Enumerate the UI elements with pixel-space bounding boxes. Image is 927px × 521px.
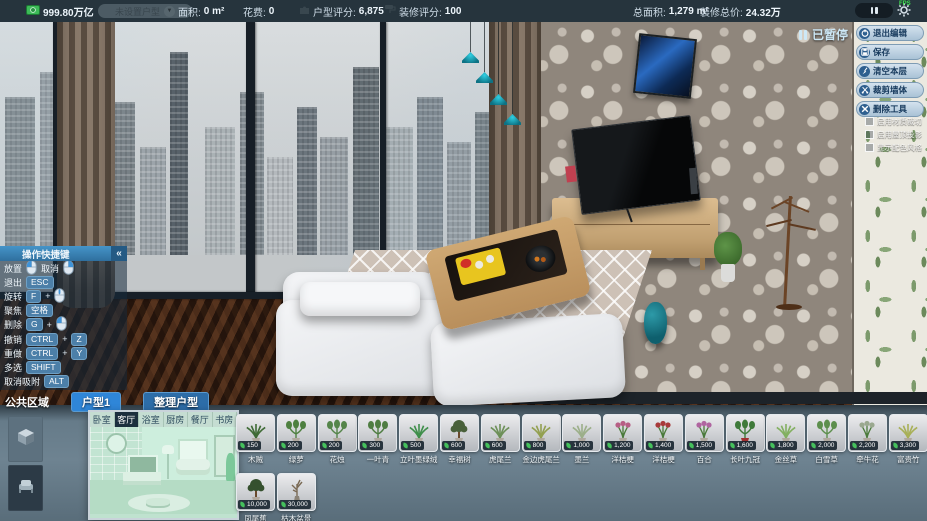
leaf-currency-icon (362, 442, 368, 448)
hotkey-label: 撤销 (4, 333, 22, 346)
catalog-item[interactable]: 800金边虎尾兰 (523, 414, 560, 465)
hotkey-label: 取消吸附 (4, 375, 40, 388)
key-pill: 空格 (26, 304, 53, 317)
item-price: 600 (451, 442, 462, 449)
item-price-badge: 30,000 (279, 500, 311, 509)
item-price: 1,500 (696, 442, 712, 449)
item-price: 3,300 (900, 442, 916, 449)
hotkey-label: 多选 (4, 361, 22, 374)
area-value: 0 m² (204, 6, 225, 17)
item-price-badge: 600 (442, 441, 465, 450)
hotkey-pair: 放置 (4, 260, 37, 277)
hotkey-pair: 撤销CTRL+Z (4, 333, 87, 346)
item-name: 墨兰 (574, 454, 589, 465)
item-name: 幸福树 (448, 454, 471, 465)
deco-score-value: 100 (445, 6, 462, 17)
hotkey-row: 取消吸附ALT (0, 375, 127, 389)
key-pill: F (26, 290, 41, 303)
hotkey-pair: 取消 (41, 260, 74, 277)
item-price: 300 (369, 442, 380, 449)
leaf-currency-icon (851, 442, 857, 448)
action-button-label: 退出编辑 (873, 27, 907, 39)
item-thumbnail: 500 (399, 414, 438, 452)
hotkey-label: 旋转 (4, 290, 22, 303)
hotkey-panel-title: 操作快捷键 (22, 247, 70, 261)
area-label: 面积: (178, 4, 201, 19)
total-area-label: 总面积: (633, 4, 666, 19)
action-button-label: 清空本层 (873, 65, 907, 77)
item-name: 牵牛花 (856, 454, 879, 465)
item-thumbnail: 600 (440, 414, 479, 452)
pendant-lamp-wire (470, 22, 471, 52)
hotkey-row: 多选SHIFT (0, 360, 127, 374)
pendant-lamp-wire (512, 22, 513, 114)
item-price-badge: 3,300 (891, 441, 919, 450)
catalog-item[interactable]: 1,000墨兰 (563, 414, 600, 465)
tv (576, 122, 696, 212)
action-button[interactable]: 删除工具 (856, 101, 924, 117)
leaf-currency-icon (688, 442, 694, 448)
hotkey-pair: 取消吸附ALT (4, 375, 69, 388)
floor-tab[interactable]: 整理户型 (143, 392, 209, 412)
action-button-label: 保存 (873, 46, 890, 58)
money-icon (26, 5, 40, 18)
edit-actions-panel: 退出编辑保存清空本层裁剪墙体删除工具 (856, 25, 924, 117)
window-frame (246, 22, 255, 297)
leaf-currency-icon (280, 442, 286, 448)
room-style-preview-panel: 卧室客厅浴室厨房餐厅书房 (88, 410, 239, 520)
total-price-value: 24.32万 (746, 4, 781, 19)
item-price: 500 (410, 442, 421, 449)
item-name: 富贵竹 (897, 454, 920, 465)
item-thumbnail: 800 (522, 414, 561, 452)
item-thumbnail: 300 (358, 414, 397, 452)
room-tab[interactable]: 浴室 (139, 412, 164, 427)
total-price-label: 装修总价: (700, 4, 743, 19)
item-price: 200 (288, 442, 299, 449)
plus-sign: + (45, 291, 50, 301)
total-price-stat: 装修总价: 24.32万 (700, 0, 781, 22)
plus-sign: + (47, 320, 52, 330)
item-thumbnail: 200 (318, 414, 357, 452)
photo-frame (565, 165, 577, 182)
mouse-left-icon (56, 316, 67, 333)
item-thumbnail: 1,600 (726, 414, 765, 452)
cost-label: 花费: (243, 4, 266, 19)
leaf-currency-icon (239, 442, 245, 448)
item-price: 150 (247, 442, 258, 449)
key-pill: SHIFT (26, 361, 61, 374)
hotkey-pair: 聚焦空格 (4, 304, 53, 317)
pause-icon (875, 7, 878, 14)
leaf-currency-icon (403, 442, 409, 448)
action-button[interactable]: 退出编辑 (856, 25, 924, 41)
item-price: 2,000 (818, 442, 834, 449)
top-bar: 999.80万亿 未设置户型 ▼ 面积: 0 m² 花费: 0 户型评分: 6,… (0, 0, 927, 22)
hotkey-pair: 退出ESC (4, 276, 54, 289)
scissors-icon (859, 85, 870, 96)
action-button[interactable]: 裁剪墙体 (856, 82, 924, 98)
key-pill: Z (71, 333, 86, 346)
layout-score-label: 户型评分: (313, 4, 356, 19)
item-price-badge: 1,400 (646, 441, 674, 450)
item-name: 虎尾兰 (489, 454, 512, 465)
hotkey-pair: 多选SHIFT (4, 361, 61, 374)
item-price: 800 (533, 442, 544, 449)
hotkey-row: 删除G+ (0, 318, 127, 332)
room-preview-image[interactable] (90, 427, 237, 514)
floor-tab[interactable]: 户型1 (71, 392, 121, 412)
key-pill: CTRL (26, 347, 58, 360)
leaf-currency-icon (280, 501, 286, 507)
item-price: 1,400 (655, 442, 671, 449)
item-thumbnail: 30,000 (277, 473, 316, 511)
leaf-currency-icon (607, 442, 613, 448)
leaf-currency-icon (321, 442, 327, 448)
item-price-badge: 1,000 (564, 441, 592, 450)
area-stat: 面积: 0 m² (178, 0, 224, 22)
hotkey-row: 放置取消 (0, 261, 127, 275)
hotkey-pair: 重做CTRL+Y (4, 347, 87, 360)
item-name: 花烛 (330, 454, 345, 465)
checkbox-icon (865, 143, 874, 152)
item-price: 10,000 (247, 501, 267, 508)
room-tab[interactable]: 卧室 (90, 412, 115, 427)
hotkey-row: 撤销CTRL+Z (0, 332, 127, 346)
item-price-badge: 150 (238, 441, 261, 450)
item-thumbnail: 600 (481, 414, 520, 452)
total-area-stat: 总面积: 1,279 m² (633, 0, 709, 22)
catalog-category-button[interactable] (8, 416, 43, 462)
hotkey-label: 放置 (4, 262, 22, 275)
item-name: 百合 (697, 454, 712, 465)
view-option-checkbox[interactable]: 显示配色风格 (865, 142, 922, 153)
paused-indicator: 已暂停 (799, 26, 848, 43)
money-display: 999.80万亿 (26, 0, 94, 22)
leaf-currency-icon (811, 442, 817, 448)
catalog-item[interactable]: 300一叶青 (359, 414, 396, 465)
pendant-lamp-wire (498, 22, 499, 94)
item-name: 洋桔梗 (652, 454, 675, 465)
catalog-item[interactable]: 2,000白雪草 (808, 414, 845, 465)
item-name: 洋桔梗 (611, 454, 634, 465)
action-button-label: 删除工具 (873, 103, 907, 115)
item-name: 金丝草 (775, 454, 798, 465)
catalog-category-buttons (8, 416, 43, 511)
leaf-currency-icon (647, 442, 653, 448)
hotkey-panel: 操作快捷键 « 放置取消退出ESC旋转F+聚焦空格删除G+撤销CTRL+Z重做C… (0, 246, 127, 390)
room-tab[interactable]: 厨房 (164, 412, 189, 427)
build-category-icon (16, 427, 36, 452)
item-thumbnail: 1,500 (685, 414, 724, 452)
item-price: 30,000 (288, 501, 308, 508)
catalog-item[interactable]: 1,500百合 (686, 414, 723, 465)
item-price-badge: 1,600 (728, 441, 756, 450)
item-name: 一叶青 (367, 454, 390, 465)
house-type-dropdown-label: 未设置户型 (115, 5, 160, 18)
item-price: 1,200 (614, 442, 630, 449)
mouse-left-icon (26, 260, 37, 277)
room-tab[interactable]: 餐厅 (188, 412, 213, 427)
game-window: 999.80万亿 未设置户型 ▼ 面积: 0 m² 花费: 0 户型评分: 6,… (0, 0, 927, 521)
cost-value: 0 (269, 6, 275, 17)
view-option-label: 启用材质裁切 (877, 116, 922, 127)
catalog-item[interactable]: 1,600长叶九冠 (727, 414, 764, 465)
room-tab[interactable]: 书房 (213, 412, 238, 427)
fps-overlay: FPS (899, 1, 911, 7)
item-thumbnail: 1,800 (766, 414, 805, 452)
catalog-item[interactable]: 1,800金丝草 (767, 414, 804, 465)
item-thumbnail: 1,200 (603, 414, 642, 452)
hotkey-row: 重做CTRL+Y (0, 346, 127, 360)
item-price-badge: 500 (401, 441, 424, 450)
delete-icon (859, 104, 870, 115)
hotkey-row: 旋转F+ (0, 289, 127, 303)
item-name: 金边虎尾兰 (522, 454, 560, 465)
item-name: 长叶九冠 (730, 454, 760, 465)
item-thumbnail: 1,000 (562, 414, 601, 452)
leaf-currency-icon (484, 442, 490, 448)
pause-icon (871, 7, 874, 14)
coat-rack (758, 196, 818, 318)
leaf-currency-icon (443, 442, 449, 448)
puzzle-icon (299, 4, 310, 18)
key-pill: G (26, 318, 43, 331)
catalog-item[interactable]: 2,200牵牛花 (849, 414, 886, 465)
catalog-item[interactable]: 600幸福树 (441, 414, 478, 465)
mouse-right-icon (63, 260, 74, 277)
action-button[interactable]: 清空本层 (856, 63, 924, 79)
plus-sign: + (62, 334, 67, 344)
key-pill: ALT (44, 375, 69, 388)
floor-tab[interactable]: 公共区域 (5, 394, 49, 410)
collapse-button[interactable]: « (111, 246, 127, 261)
item-price: 1,600 (737, 442, 753, 449)
leaf-currency-icon (239, 501, 245, 507)
catalog-item[interactable]: 500立叶墨绿绒 (400, 414, 437, 465)
item-name: 凤尾蕉 (244, 513, 267, 521)
item-price: 200 (329, 442, 340, 449)
paused-label: 已暂停 (812, 26, 848, 43)
catalog-item[interactable]: 30,000枯木盆景 (278, 473, 315, 521)
catalog-item[interactable]: 150木贼 (237, 414, 274, 465)
catalog-item[interactable]: 1,400洋桔梗 (645, 414, 682, 465)
save-icon (859, 47, 870, 58)
item-thumbnail: 3,300 (889, 414, 927, 452)
money-value: 999.80万亿 (43, 4, 94, 19)
plus-sign: + (62, 348, 67, 358)
power-icon (859, 28, 870, 39)
pendant-lamp-wire (484, 22, 485, 72)
pause-button[interactable] (855, 3, 893, 18)
leaf-currency-icon (525, 442, 531, 448)
item-thumbnail: 2,000 (807, 414, 846, 452)
leaf-currency-icon (892, 442, 898, 448)
item-price-badge: 300 (360, 441, 383, 450)
layout-score-stat: 户型评分: 6,875 (299, 0, 384, 22)
item-thumbnail: 150 (236, 414, 275, 452)
floor-tabs: 公共区域户型1整理户型 (5, 392, 209, 412)
hotkey-pair: 旋转F+ (4, 288, 65, 305)
item-name: 白雪草 (815, 454, 838, 465)
item-price-badge: 800 (524, 441, 547, 450)
layout-score-value: 6,875 (359, 6, 384, 17)
furniture-category-icon (16, 476, 36, 501)
catalog-item[interactable]: 200绿萝 (278, 414, 315, 465)
key-pill: ESC (26, 276, 53, 289)
item-price: 600 (492, 442, 503, 449)
checkbox-icon (865, 117, 874, 126)
view-option-label: 启用屋顶投影 (877, 129, 922, 140)
item-thumbnail: 2,200 (848, 414, 887, 452)
potted-plant (708, 232, 748, 302)
hotkey-panel-header: 操作快捷键 « (0, 246, 127, 261)
wall-art (633, 33, 697, 99)
catalog-item[interactable]: 1,200洋桔梗 (604, 414, 641, 465)
item-thumbnail: 200 (277, 414, 316, 452)
hotkey-label: 重做 (4, 347, 22, 360)
room-tab[interactable]: 客厅 (115, 412, 140, 427)
leaf-currency-icon (770, 442, 776, 448)
broom-icon (859, 66, 870, 77)
room-tabs: 卧室客厅浴室厨房餐厅书房 (90, 412, 237, 427)
item-price-badge: 2,200 (850, 441, 878, 450)
key-pill: Y (71, 347, 87, 360)
item-price-badge: 200 (320, 441, 343, 450)
mouse-mid-icon (54, 288, 65, 305)
item-grid: 150木贼200绿萝200花烛300一叶青500立叶墨绿绒600幸福树600虎尾… (237, 414, 927, 521)
hotkey-label: 删除 (4, 318, 22, 331)
item-price-badge: 200 (279, 441, 302, 450)
view-option-label: 显示配色风格 (877, 142, 922, 153)
item-thumbnail: 10,000 (236, 473, 275, 511)
item-name: 木贼 (248, 454, 263, 465)
view-option-checkbox[interactable]: 启用屋顶投影 (865, 129, 922, 140)
item-name: 绿萝 (289, 454, 304, 465)
item-name: 枯木盆景 (281, 513, 311, 521)
item-price-badge: 1,500 (687, 441, 715, 450)
item-price: 1,000 (573, 442, 589, 449)
catalog-category-button[interactable] (8, 465, 43, 511)
catalog-item[interactable]: 10,000凤尾蕉 (237, 473, 274, 521)
chevron-down-icon: ▼ (164, 6, 175, 17)
hotkey-label: 聚焦 (4, 304, 22, 317)
view-options-panel: 启用材质裁切启用屋顶投影显示配色风格 (865, 116, 922, 153)
view-option-checkbox[interactable]: 启用材质裁切 (865, 116, 922, 127)
key-pill: CTRL (26, 333, 58, 346)
item-price-badge: 600 (483, 441, 506, 450)
action-button-label: 裁剪墙体 (873, 84, 907, 96)
cost-stat: 花费: 0 (243, 0, 274, 22)
hotkey-label: 取消 (41, 262, 59, 275)
item-name: 立叶墨绿绒 (400, 454, 438, 465)
deco-score-stat: 装修评分: 100 (384, 0, 461, 22)
deco-score-label: 装修评分: (399, 4, 442, 19)
catalog-item[interactable]: 600虎尾兰 (482, 414, 519, 465)
item-thumbnail: 1,400 (644, 414, 683, 452)
hotkey-pair: 删除G+ (4, 316, 67, 333)
roller-icon (384, 4, 396, 18)
leaf-currency-icon (566, 442, 572, 448)
leaf-currency-icon (729, 442, 735, 448)
catalog-item[interactable]: 200花烛 (319, 414, 356, 465)
checkbox-icon (865, 130, 874, 139)
item-price-badge: 10,000 (238, 500, 270, 509)
item-price-badge: 1,800 (768, 441, 796, 450)
item-price: 1,800 (777, 442, 793, 449)
item-price: 2,200 (859, 442, 875, 449)
catalog-item[interactable]: 3,300富贵竹 (890, 414, 927, 465)
item-price-badge: 1,200 (605, 441, 633, 450)
save-button[interactable]: 保存 (856, 44, 924, 60)
hotkey-label: 退出 (4, 276, 22, 289)
sofa-cushion (300, 282, 420, 316)
item-price-badge: 2,000 (809, 441, 837, 450)
blue-vase (644, 302, 667, 344)
